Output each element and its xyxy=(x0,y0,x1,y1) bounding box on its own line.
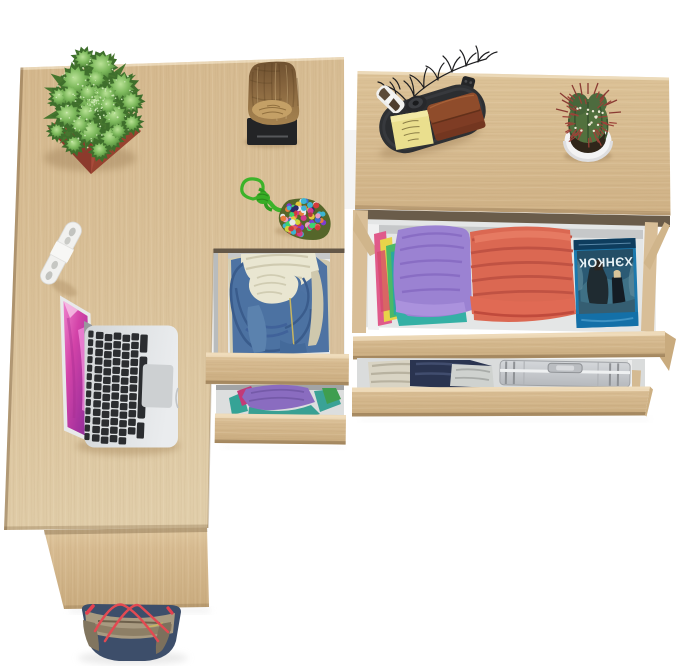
svg-text:ХЭНКОК: ХЭНКОК xyxy=(579,254,633,270)
